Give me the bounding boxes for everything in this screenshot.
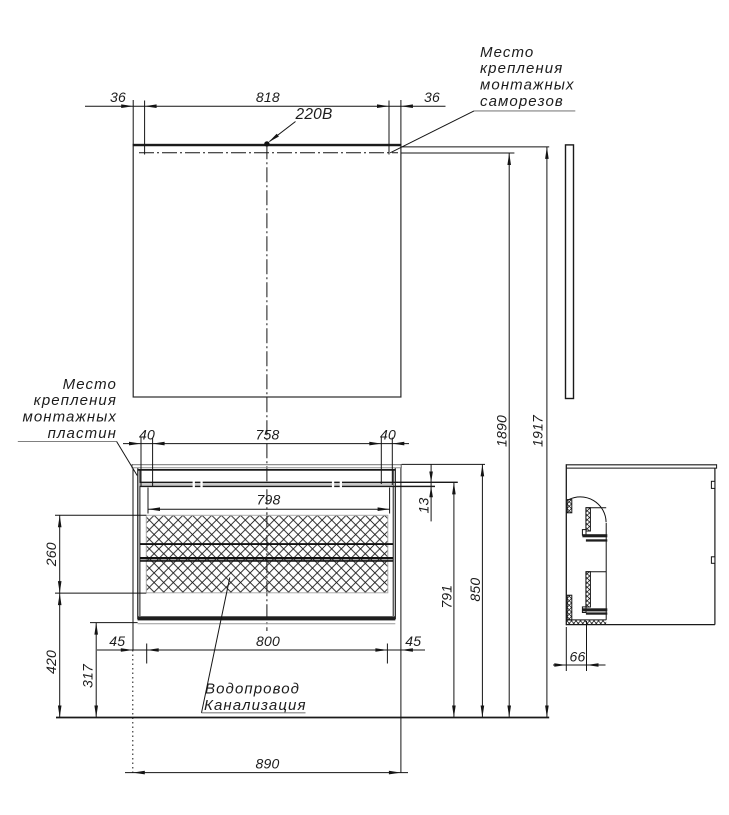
svg-text:798: 798 xyxy=(257,492,281,508)
svg-text:1890: 1890 xyxy=(494,415,510,447)
svg-text:Место: Место xyxy=(63,376,117,393)
svg-text:45: 45 xyxy=(405,633,421,649)
svg-text:Канализация: Канализация xyxy=(204,697,307,714)
svg-text:Водопровод: Водопровод xyxy=(205,681,300,698)
svg-text:1917: 1917 xyxy=(530,414,546,447)
svg-text:758: 758 xyxy=(256,426,280,442)
svg-text:36: 36 xyxy=(424,89,440,105)
svg-text:800: 800 xyxy=(256,633,280,649)
svg-text:Место: Место xyxy=(480,44,534,61)
svg-text:саморезов: саморезов xyxy=(480,93,564,110)
svg-text:40: 40 xyxy=(139,426,155,442)
svg-text:420: 420 xyxy=(43,650,59,674)
svg-text:крепления: крепления xyxy=(480,60,563,77)
svg-text:крепления: крепления xyxy=(34,392,117,409)
svg-text:220В: 220В xyxy=(295,106,333,123)
svg-text:850: 850 xyxy=(467,578,483,602)
svg-text:260: 260 xyxy=(43,542,59,567)
svg-text:13: 13 xyxy=(416,498,432,514)
svg-text:45: 45 xyxy=(109,633,125,649)
svg-text:монтажных: монтажных xyxy=(480,77,575,94)
svg-text:317: 317 xyxy=(79,663,95,688)
svg-text:пластин: пластин xyxy=(48,425,117,442)
svg-text:36: 36 xyxy=(110,89,126,105)
svg-text:40: 40 xyxy=(380,426,396,442)
svg-text:890: 890 xyxy=(256,755,280,771)
svg-text:66: 66 xyxy=(570,649,586,665)
svg-text:818: 818 xyxy=(256,89,280,105)
svg-text:монтажных: монтажных xyxy=(22,409,117,426)
svg-text:791: 791 xyxy=(438,585,454,609)
